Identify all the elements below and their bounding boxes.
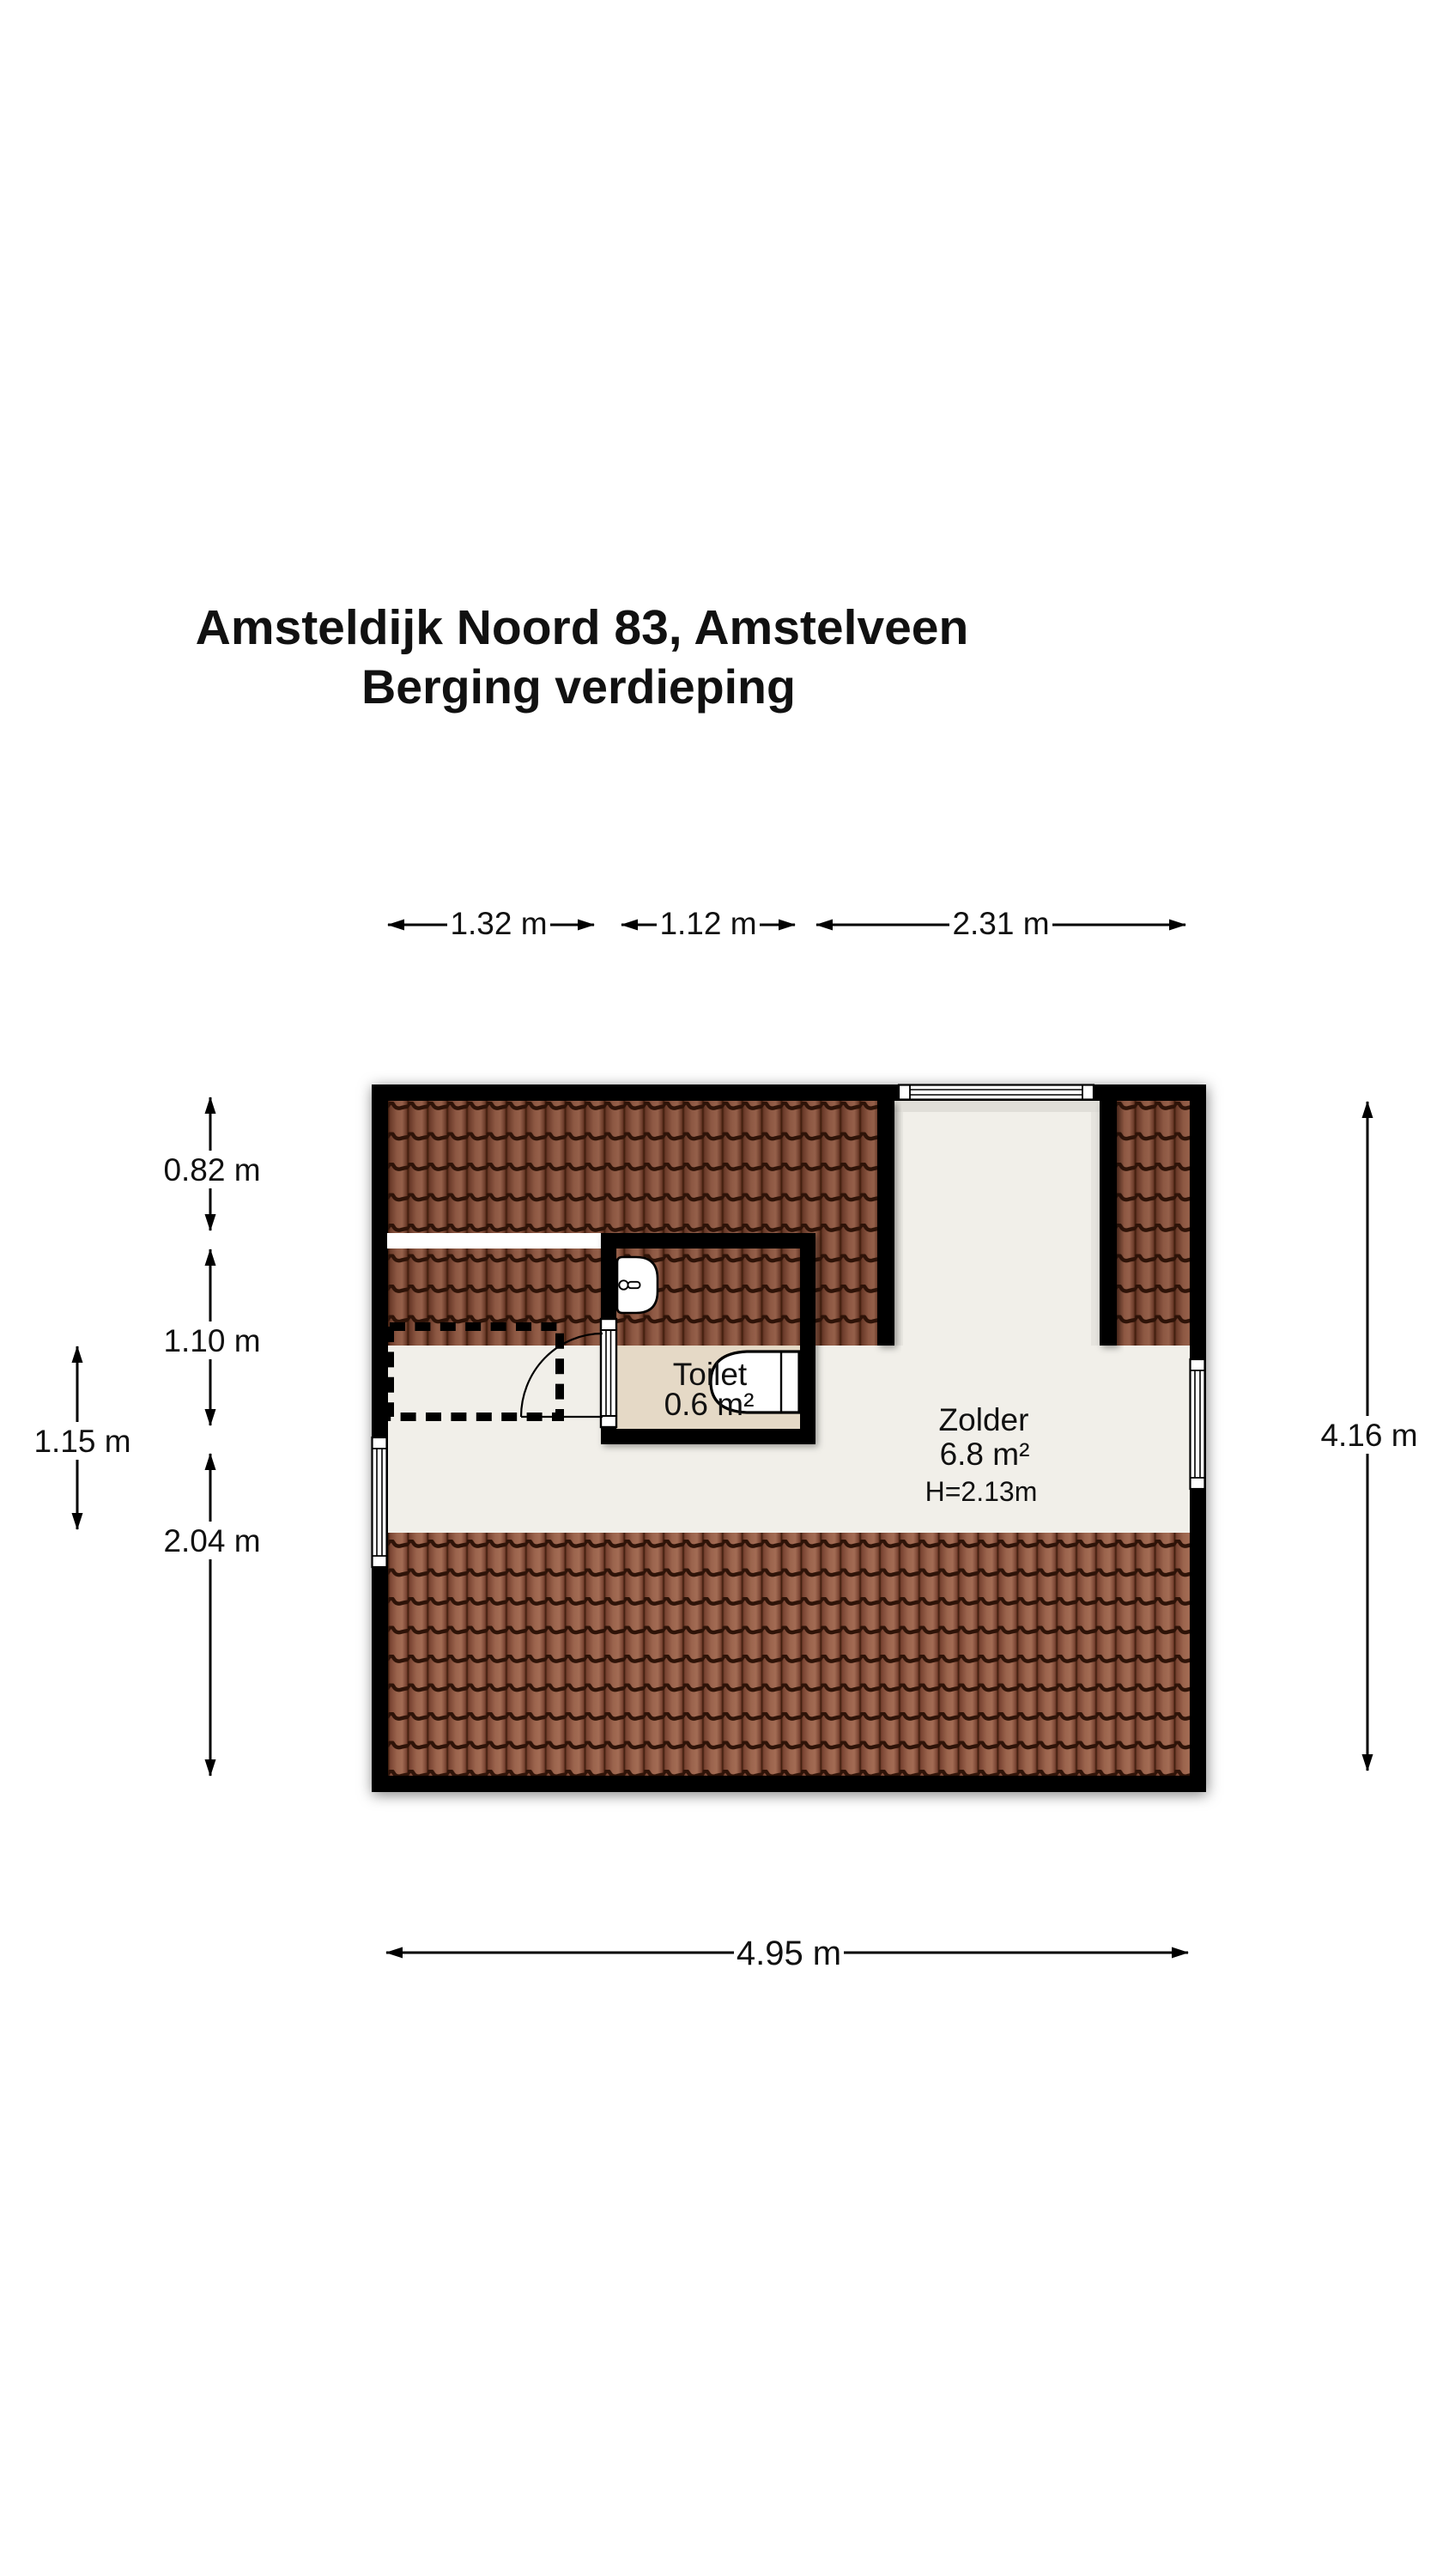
svg-text:0.6 m²: 0.6 m² [664,1387,755,1422]
svg-text:H=2.13m: H=2.13m [925,1476,1038,1507]
svg-text:2.04 m: 2.04 m [163,1523,260,1558]
svg-text:1.10 m: 1.10 m [163,1323,260,1358]
svg-text:1.15 m: 1.15 m [33,1424,130,1459]
svg-text:Berging verdieping: Berging verdieping [361,660,796,714]
svg-text:0.82 m: 0.82 m [163,1152,260,1188]
svg-text:Zolder: Zolder [939,1402,1029,1437]
svg-text:4.16 m: 4.16 m [1320,1418,1417,1453]
svg-text:Amsteldijk Noord 83, Amstelvee: Amsteldijk Noord 83, Amstelveen [196,600,969,655]
svg-text:1.32 m: 1.32 m [450,906,547,941]
svg-text:4.95 m: 4.95 m [737,1935,841,1972]
svg-text:1.12 m: 1.12 m [659,906,756,941]
svg-text:2.31 m: 2.31 m [952,906,1049,941]
svg-text:6.8 m²: 6.8 m² [940,1437,1030,1472]
